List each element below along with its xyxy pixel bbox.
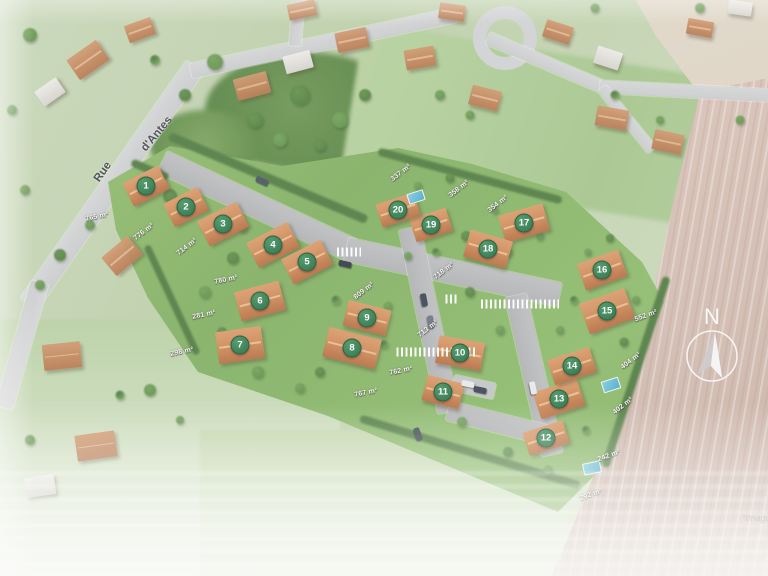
lot-number: 14 bbox=[567, 361, 578, 371]
tree bbox=[404, 252, 412, 260]
tree bbox=[736, 116, 745, 125]
tree bbox=[606, 234, 614, 242]
tree bbox=[54, 249, 66, 261]
tree bbox=[25, 435, 35, 445]
tree bbox=[7, 105, 17, 115]
aerial-site-plan: 1234567891011121314151617181920 765 m²77… bbox=[0, 0, 768, 576]
tree bbox=[695, 3, 705, 13]
lot-number: 16 bbox=[597, 265, 608, 275]
lot-number: 5 bbox=[304, 257, 309, 267]
lot-marker-5: 5 bbox=[298, 253, 317, 272]
lot-marker-13: 13 bbox=[550, 390, 569, 409]
lot-number: 18 bbox=[483, 244, 494, 254]
lot-marker-9: 9 bbox=[358, 309, 377, 328]
tree bbox=[35, 280, 45, 290]
lot-number: 11 bbox=[438, 387, 448, 397]
lot-number: 19 bbox=[426, 220, 437, 230]
lot-number: 9 bbox=[364, 313, 369, 323]
tree bbox=[179, 89, 191, 101]
tree bbox=[332, 296, 341, 305]
tree bbox=[556, 326, 564, 334]
lot-marker-8: 8 bbox=[343, 339, 362, 358]
tree bbox=[496, 326, 505, 335]
tree bbox=[227, 252, 239, 264]
lot-number: 12 bbox=[541, 433, 552, 443]
crosswalk bbox=[337, 248, 361, 257]
crosswalk bbox=[446, 295, 459, 304]
lot-number: 15 bbox=[602, 306, 613, 316]
lot-marker-20: 20 bbox=[389, 201, 408, 220]
tree bbox=[315, 367, 325, 377]
tree bbox=[465, 287, 475, 297]
lot-number: 4 bbox=[270, 240, 275, 250]
tree bbox=[295, 383, 305, 393]
lot-marker-16: 16 bbox=[593, 261, 612, 280]
tree bbox=[620, 338, 629, 347]
tree bbox=[332, 112, 348, 128]
lot-number: 13 bbox=[554, 394, 565, 404]
tree bbox=[23, 28, 37, 42]
lot-marker-10: 10 bbox=[451, 344, 470, 363]
lot-marker-6: 6 bbox=[251, 292, 270, 311]
tree bbox=[290, 85, 310, 105]
lot-marker-14: 14 bbox=[563, 357, 582, 376]
lot-number: 7 bbox=[237, 340, 242, 350]
tree bbox=[199, 286, 211, 298]
lot-marker-4: 4 bbox=[264, 236, 283, 255]
lot-number: 20 bbox=[393, 205, 404, 215]
tree bbox=[466, 111, 475, 120]
tree bbox=[314, 139, 326, 151]
tree bbox=[207, 54, 223, 70]
tree bbox=[611, 91, 620, 100]
watermark-text: *Image bbox=[742, 513, 768, 523]
tree bbox=[150, 55, 160, 65]
tree bbox=[252, 366, 264, 378]
tree bbox=[247, 112, 263, 128]
tree bbox=[457, 417, 467, 427]
tree bbox=[144, 384, 156, 396]
tree bbox=[585, 249, 592, 256]
tree bbox=[503, 447, 513, 457]
neighbor-house bbox=[74, 430, 117, 461]
crosswalk bbox=[481, 300, 559, 309]
neighbor-house bbox=[438, 2, 466, 21]
lot-marker-7: 7 bbox=[231, 336, 250, 355]
lot-marker-11: 11 bbox=[434, 383, 453, 402]
compass: N bbox=[666, 292, 762, 402]
lot-marker-17: 17 bbox=[515, 214, 534, 233]
tree bbox=[273, 133, 287, 147]
lot-marker-15: 15 bbox=[598, 302, 617, 321]
tree bbox=[176, 416, 184, 424]
lot-marker-18: 18 bbox=[479, 240, 498, 259]
lot-number: 3 bbox=[220, 219, 225, 229]
tree bbox=[432, 248, 440, 256]
tree bbox=[632, 296, 640, 304]
neighbor-house bbox=[24, 474, 56, 498]
tree bbox=[570, 296, 578, 304]
tree bbox=[20, 185, 30, 195]
lot-number: 6 bbox=[257, 296, 262, 306]
lot-number: 10 bbox=[455, 348, 466, 358]
tree bbox=[656, 116, 664, 124]
lot-marker-1: 1 bbox=[137, 177, 156, 196]
compass-arrow-icon bbox=[697, 331, 728, 379]
lot-number: 17 bbox=[519, 218, 530, 228]
lot-marker-2: 2 bbox=[177, 198, 196, 217]
compass-n-label: N bbox=[704, 304, 720, 329]
tree bbox=[435, 90, 445, 100]
tree bbox=[446, 174, 455, 183]
tree bbox=[582, 426, 590, 434]
tree bbox=[591, 4, 600, 13]
tree bbox=[116, 391, 125, 400]
lot-marker-19: 19 bbox=[422, 216, 441, 235]
lot-number: 2 bbox=[183, 202, 188, 212]
lot-marker-12: 12 bbox=[537, 429, 556, 448]
neighbor-house bbox=[42, 341, 83, 371]
lot-number: 1 bbox=[143, 181, 148, 191]
lot-number: 8 bbox=[349, 343, 354, 353]
lot-marker-3: 3 bbox=[214, 215, 233, 234]
tree bbox=[544, 466, 553, 475]
tree bbox=[359, 89, 371, 101]
